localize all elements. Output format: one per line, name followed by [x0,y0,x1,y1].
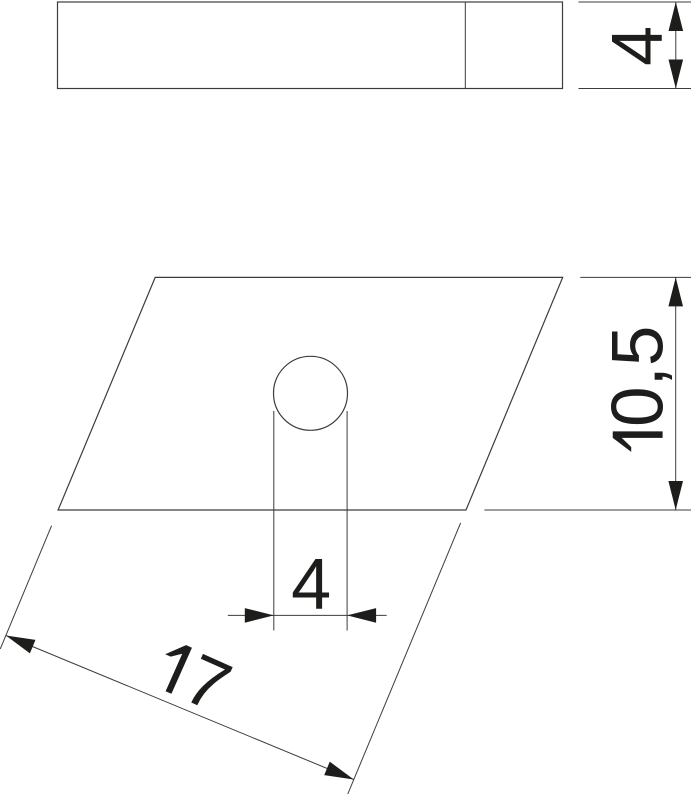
svg-text:4: 4 [598,26,678,66]
svg-text:0,5: 0,5 [598,326,679,427]
svg-text:4: 4 [291,545,331,625]
